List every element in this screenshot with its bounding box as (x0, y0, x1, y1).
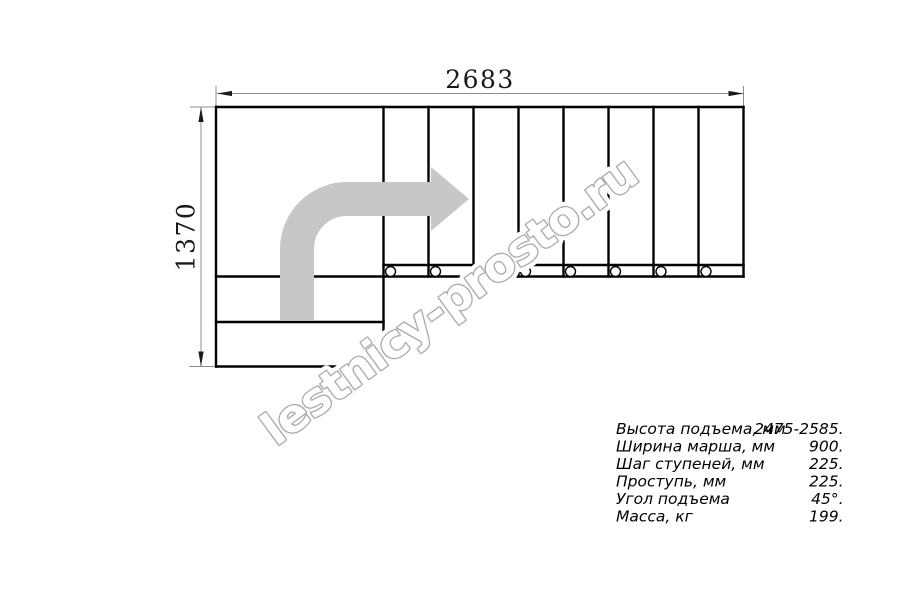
dimension-arrow-left (217, 91, 232, 96)
spec-row: Проступь, мм 225. (616, 473, 844, 491)
fastener-circles (386, 267, 712, 277)
spec-row: Ширина марша, мм 900. (616, 438, 844, 456)
spec-row: Угол подъема 45°. (616, 490, 844, 508)
spec-row: Масса, кг 199. (616, 508, 844, 526)
fastener-circle (566, 267, 576, 277)
dimension-arrow-top (198, 107, 203, 122)
spec-value: 2475-2585. (754, 420, 843, 438)
dimension-arrow-right (729, 91, 744, 96)
spec-row: Высота подъема, мм 2475-2585. (616, 420, 844, 438)
stair-plan-drawing: 2683 1370 (0, 0, 900, 600)
spec-value: 225. (809, 473, 844, 491)
spec-label: Шаг ступеней, мм (616, 455, 765, 473)
dimension-height-label: 1370 (172, 202, 201, 272)
spec-value: 199. (809, 508, 844, 526)
spec-row: Шаг ступеней, мм 225. (616, 455, 844, 473)
drawing-canvas: 2683 1370 (0, 0, 900, 600)
spec-label: Ширина марша, мм (616, 438, 775, 456)
spec-label: Угол подъема (616, 490, 730, 508)
spec-label: Масса, кг (616, 508, 694, 526)
dimension-width-label: 2683 (445, 65, 515, 94)
fastener-circle (386, 267, 396, 277)
fastener-circle (701, 267, 711, 277)
spec-value: 225. (809, 455, 844, 473)
fastener-circle (611, 267, 621, 277)
fastener-circle (656, 267, 666, 277)
direction-arrow-head (431, 167, 469, 231)
dimension-vertical: 1370 (172, 107, 215, 367)
dimension-arrow-bottom (198, 352, 203, 367)
spec-table: Высота подъема, мм 2475-2585. Ширина мар… (616, 420, 844, 526)
spec-value: 900. (809, 438, 844, 456)
dimension-horizontal: 2683 (216, 65, 744, 108)
spec-value: 45°. (811, 490, 843, 508)
spec-label: Проступь, мм (616, 473, 727, 491)
